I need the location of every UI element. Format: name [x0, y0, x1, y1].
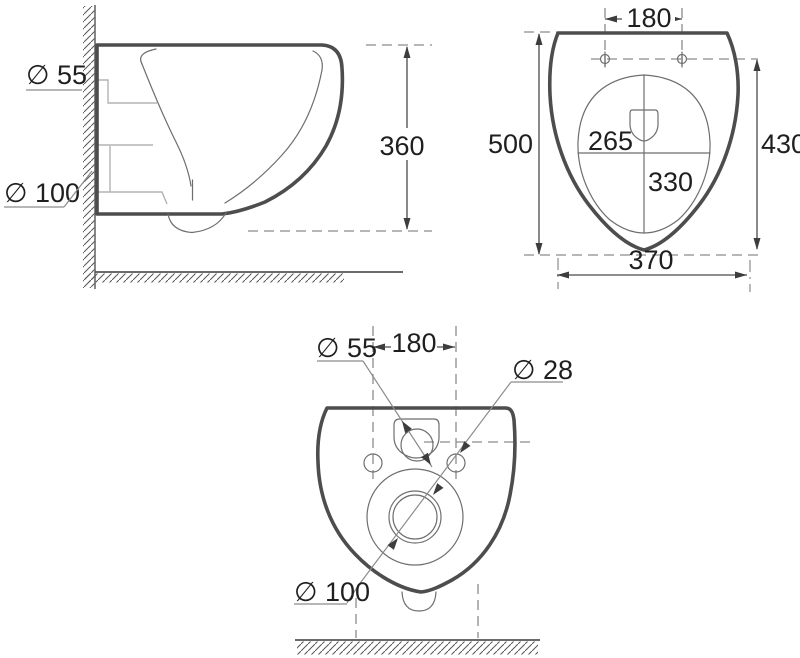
- toilet-dimension-drawing: 360 ∅ 55 ∅ 100 180: [0, 0, 800, 658]
- technical-drawing-page: 360 ∅ 55 ∅ 100 180: [0, 0, 800, 658]
- side-inlet-diameter-label: ∅ 55: [26, 60, 87, 90]
- trap-outlet-bump: [402, 592, 436, 611]
- rim-inner-curve: [313, 51, 322, 70]
- rear-outlet-diameter-label: ∅ 100: [294, 577, 370, 607]
- dim-430-arrow-up: [754, 59, 761, 71]
- bottom-floor-hatch: [297, 642, 538, 655]
- side-outlet-diameter-label: ∅ 100: [4, 178, 80, 208]
- dim-265-label: 265: [588, 126, 633, 156]
- side-floor-hatch: [85, 274, 344, 283]
- dim-360-arrow-up: [404, 46, 411, 58]
- dim-360-arrow-down: [404, 218, 411, 230]
- bowl-wall-curve: [225, 70, 322, 203]
- dim-430-label: 430: [761, 129, 800, 159]
- dim-360-label: 360: [379, 131, 424, 161]
- dim-180-bottom-label: 180: [391, 328, 436, 358]
- dim-430-arrow-down: [754, 238, 761, 250]
- dim-370-label: 370: [628, 245, 673, 275]
- outlet-pipe-inner-circle: [393, 495, 437, 539]
- dim-180-top-label: 180: [626, 3, 671, 33]
- rear-hole-diameter-label: ∅ 28: [512, 355, 573, 385]
- top-view: 180 500 430 370 265 330: [488, 3, 800, 292]
- dim-500-arrow-up: [536, 33, 543, 45]
- dim-500-arrow-down: [536, 243, 543, 255]
- dim-180-bottom-arrow-right: [443, 344, 455, 351]
- trap-curve: [168, 213, 226, 233]
- dim-180-top-arrow-left: [605, 16, 617, 23]
- dim-500-label: 500: [488, 129, 533, 159]
- bottom-view: 180 ∅ 55 ∅ 28 ∅ 100: [294, 326, 573, 655]
- funnel-curve: [142, 64, 191, 186]
- funnel-hook-curve: [141, 49, 156, 64]
- dim-370-arrow-left: [557, 272, 569, 279]
- wall-hatch: [83, 6, 95, 288]
- outlet-outer-circle: [367, 469, 463, 565]
- toilet-side-outline: [97, 45, 342, 214]
- dim-370-arrow-right: [735, 272, 747, 279]
- inlet-arrow-upper: [402, 421, 412, 433]
- dim-330-label: 330: [648, 167, 693, 197]
- rear-inlet-diameter-label: ∅ 55: [316, 333, 377, 363]
- side-view: 360 ∅ 55 ∅ 100: [4, 5, 432, 289]
